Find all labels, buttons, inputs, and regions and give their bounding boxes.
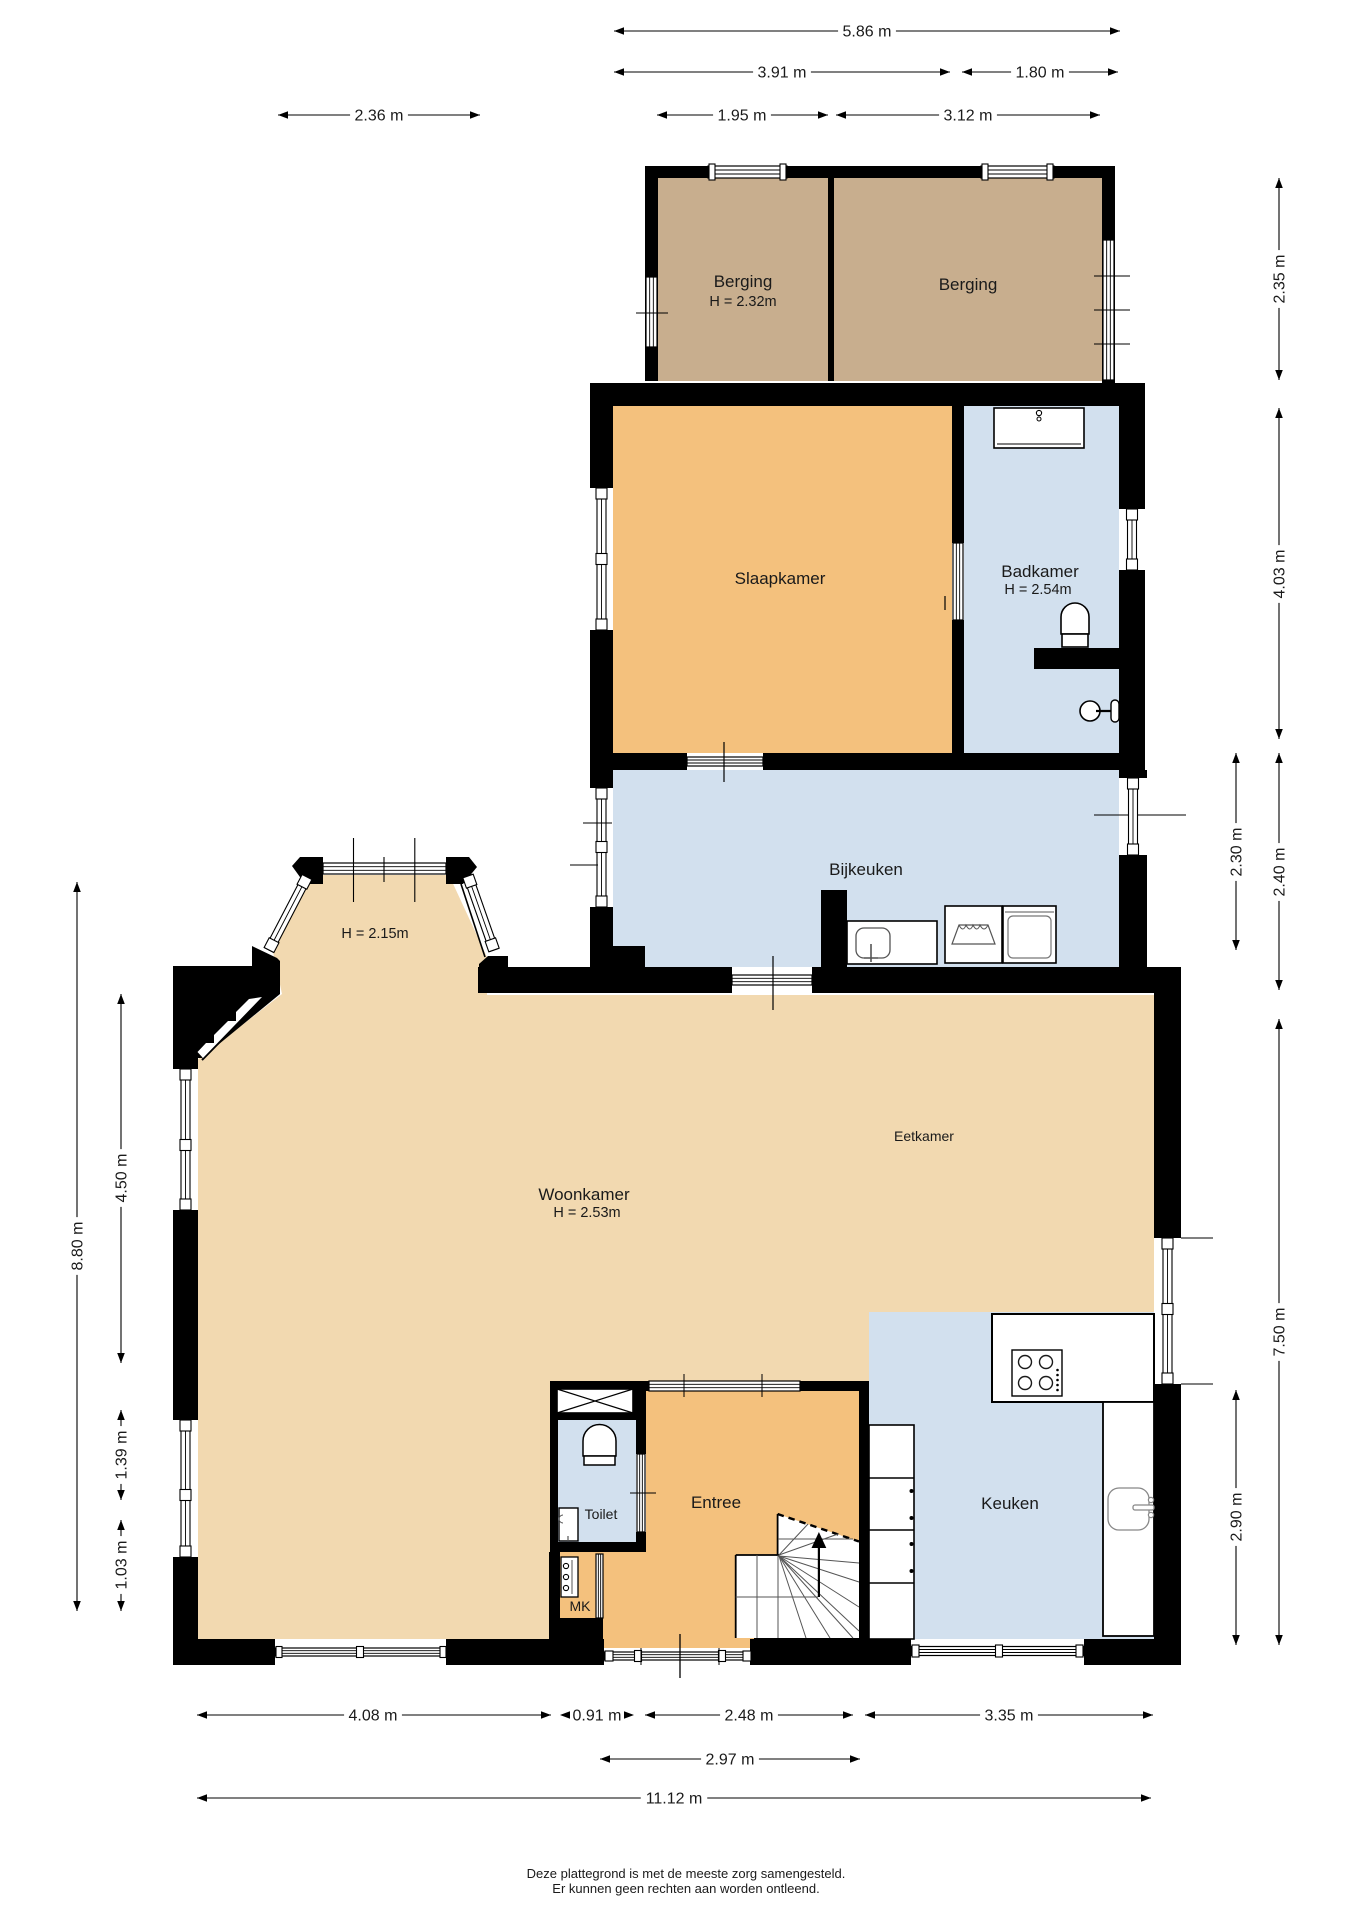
svg-text:4.08 m: 4.08 m <box>349 1707 398 1724</box>
svg-text:2.35 m: 2.35 m <box>1271 255 1288 304</box>
svg-text:Bijkeuken: Bijkeuken <box>829 860 903 879</box>
svg-text:1.80 m: 1.80 m <box>1016 64 1065 81</box>
svg-text:Berging: Berging <box>714 272 773 291</box>
svg-text:H = 2.15m: H = 2.15m <box>341 926 408 942</box>
svg-text:4.03 m: 4.03 m <box>1271 550 1288 599</box>
svg-text:2.36 m: 2.36 m <box>355 107 404 124</box>
svg-text:7.50 m: 7.50 m <box>1271 1308 1288 1357</box>
svg-text:3.91 m: 3.91 m <box>758 64 807 81</box>
svg-text:Badkamer: Badkamer <box>1001 562 1079 581</box>
svg-text:Woonkamer: Woonkamer <box>538 1185 630 1204</box>
svg-text:Eetkamer: Eetkamer <box>894 1128 954 1144</box>
svg-text:H = 2.32m: H = 2.32m <box>709 294 776 310</box>
svg-text:Deze plattegrond is met de mee: Deze plattegrond is met de meeste zorg s… <box>527 1866 846 1881</box>
svg-text:8.80 m: 8.80 m <box>69 1222 86 1271</box>
svg-text:3.12 m: 3.12 m <box>944 107 993 124</box>
svg-text:Slaapkamer: Slaapkamer <box>735 569 826 588</box>
svg-text:Berging: Berging <box>939 275 998 294</box>
svg-text:4.50 m: 4.50 m <box>113 1154 130 1203</box>
svg-text:1.03 m: 1.03 m <box>113 1541 130 1590</box>
svg-text:Toilet: Toilet <box>585 1506 618 1522</box>
svg-text:2.97 m: 2.97 m <box>706 1751 755 1768</box>
svg-text:0.91 m: 0.91 m <box>573 1707 622 1724</box>
svg-text:1.39 m: 1.39 m <box>113 1431 130 1480</box>
svg-text:1.95 m: 1.95 m <box>718 107 767 124</box>
svg-text:Er kunnen geen rechten aan wor: Er kunnen geen rechten aan worden ontlee… <box>552 1881 819 1896</box>
svg-text:2.40 m: 2.40 m <box>1271 848 1288 897</box>
svg-text:2.30 m: 2.30 m <box>1228 828 1245 877</box>
svg-text:3.35 m: 3.35 m <box>985 1707 1034 1724</box>
svg-text:2.90 m: 2.90 m <box>1228 1493 1245 1542</box>
svg-text:5.86 m: 5.86 m <box>843 23 892 40</box>
svg-text:MK: MK <box>570 1598 592 1614</box>
svg-text:11.12 m: 11.12 m <box>646 1790 703 1807</box>
svg-text:H = 2.53m: H = 2.53m <box>553 1205 620 1221</box>
svg-text:Entree: Entree <box>691 1493 741 1512</box>
svg-text:H = 2.54m: H = 2.54m <box>1004 582 1071 598</box>
svg-text:2.48 m: 2.48 m <box>725 1707 774 1724</box>
svg-text:Keuken: Keuken <box>981 1494 1039 1513</box>
